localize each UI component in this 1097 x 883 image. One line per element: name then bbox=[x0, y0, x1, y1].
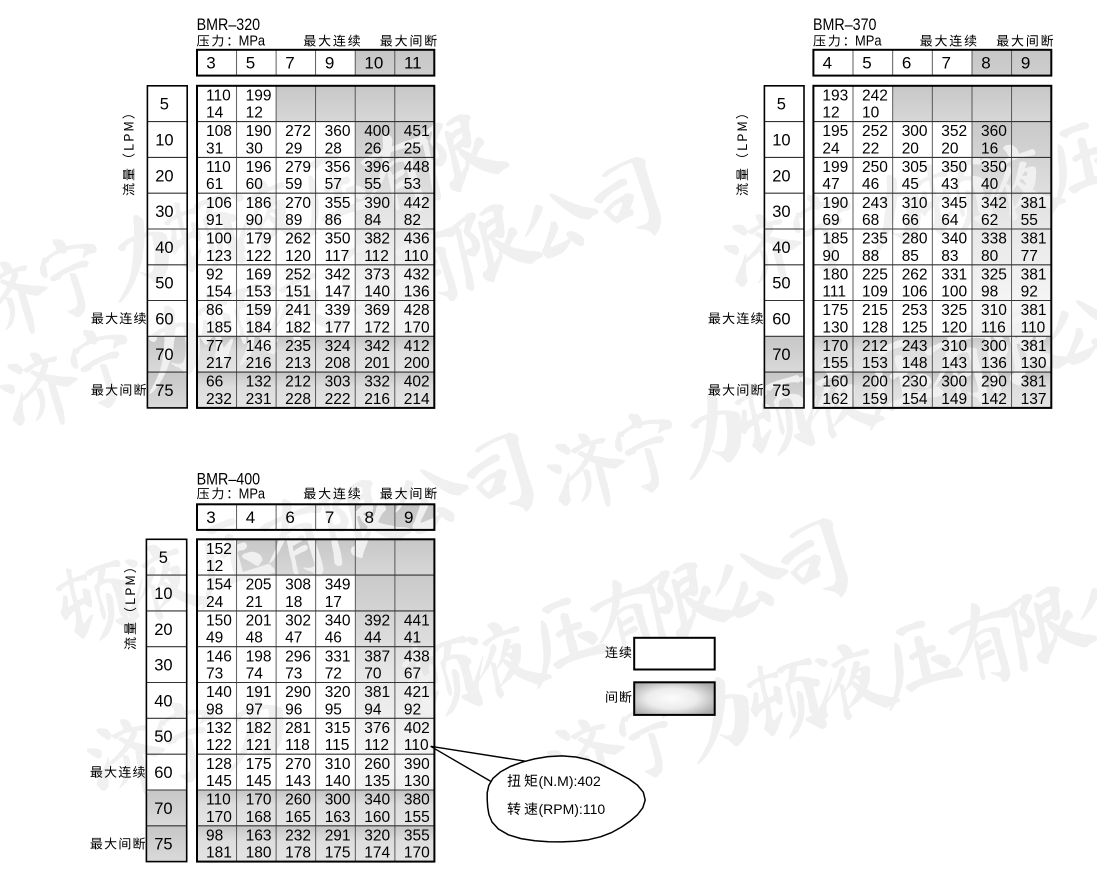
svg-text:310: 310 bbox=[325, 756, 351, 773]
svg-text:170: 170 bbox=[404, 845, 430, 862]
svg-text:130: 130 bbox=[404, 773, 430, 790]
svg-text:320: 320 bbox=[325, 684, 351, 701]
svg-text:360: 360 bbox=[325, 123, 351, 140]
svg-text:110: 110 bbox=[206, 87, 231, 104]
svg-text:154: 154 bbox=[902, 391, 928, 408]
svg-text:74: 74 bbox=[246, 666, 264, 683]
svg-text:121: 121 bbox=[246, 737, 272, 754]
svg-text:339: 339 bbox=[325, 302, 351, 319]
svg-text:77: 77 bbox=[1021, 248, 1038, 265]
svg-text:136: 136 bbox=[404, 284, 430, 301]
svg-text:146: 146 bbox=[246, 338, 272, 355]
svg-text:146: 146 bbox=[206, 648, 232, 665]
svg-text:170: 170 bbox=[822, 338, 848, 355]
svg-text:48: 48 bbox=[246, 630, 263, 647]
svg-text:10: 10 bbox=[772, 132, 790, 150]
svg-text:179: 179 bbox=[246, 231, 272, 248]
svg-text:75: 75 bbox=[155, 382, 173, 400]
svg-text:310: 310 bbox=[941, 338, 967, 355]
svg-text:291: 291 bbox=[325, 827, 351, 844]
svg-text:230: 230 bbox=[902, 374, 928, 391]
svg-text:111: 111 bbox=[822, 284, 846, 301]
svg-text:122: 122 bbox=[246, 248, 272, 265]
svg-text:381: 381 bbox=[364, 684, 390, 701]
svg-text:252: 252 bbox=[862, 123, 888, 140]
svg-text:281: 281 bbox=[285, 720, 311, 737]
svg-text:70: 70 bbox=[364, 666, 382, 683]
svg-text:120: 120 bbox=[285, 248, 311, 265]
svg-text:3: 3 bbox=[206, 54, 215, 73]
svg-text:100: 100 bbox=[206, 231, 232, 248]
svg-text:382: 382 bbox=[364, 231, 390, 248]
svg-text:213: 213 bbox=[285, 355, 311, 372]
svg-text:180: 180 bbox=[246, 845, 272, 862]
svg-text:310: 310 bbox=[981, 302, 1007, 319]
svg-text:73: 73 bbox=[206, 666, 223, 683]
svg-text:17: 17 bbox=[325, 594, 342, 611]
svg-text:160: 160 bbox=[822, 374, 848, 391]
svg-text:140: 140 bbox=[364, 284, 390, 301]
svg-text:308: 308 bbox=[285, 577, 311, 594]
svg-text:132: 132 bbox=[206, 720, 232, 737]
svg-text:108: 108 bbox=[206, 123, 232, 140]
svg-text:303: 303 bbox=[325, 374, 351, 391]
svg-text:10: 10 bbox=[862, 105, 880, 122]
svg-text:342: 342 bbox=[325, 266, 351, 283]
svg-text:345: 345 bbox=[941, 195, 967, 212]
svg-text:242: 242 bbox=[862, 87, 888, 104]
svg-text:10: 10 bbox=[155, 132, 173, 150]
svg-text:20: 20 bbox=[155, 167, 173, 185]
svg-text:91: 91 bbox=[206, 212, 223, 229]
svg-text:324: 324 bbox=[325, 338, 351, 355]
svg-text:90: 90 bbox=[246, 212, 264, 229]
svg-text:98: 98 bbox=[981, 284, 998, 301]
svg-text:253: 253 bbox=[902, 302, 928, 319]
svg-text:110: 110 bbox=[206, 159, 231, 176]
svg-text:262: 262 bbox=[285, 231, 311, 248]
svg-text:117: 117 bbox=[325, 248, 350, 265]
svg-text:70: 70 bbox=[154, 800, 172, 818]
svg-text:172: 172 bbox=[364, 319, 390, 336]
svg-text:369: 369 bbox=[364, 302, 390, 319]
svg-text:196: 196 bbox=[246, 159, 272, 176]
svg-text:280: 280 bbox=[902, 231, 928, 248]
svg-text:143: 143 bbox=[285, 773, 311, 790]
svg-text:92: 92 bbox=[1021, 284, 1038, 301]
svg-text:47: 47 bbox=[822, 176, 839, 193]
svg-text:BMR–370: BMR–370 bbox=[813, 15, 877, 34]
svg-text:112: 112 bbox=[364, 737, 389, 754]
svg-text:BMR–320: BMR–320 bbox=[197, 15, 261, 34]
svg-text:142: 142 bbox=[981, 391, 1007, 408]
svg-text:20: 20 bbox=[941, 140, 959, 157]
svg-text:110: 110 bbox=[404, 737, 429, 754]
svg-text:115: 115 bbox=[325, 737, 350, 754]
svg-text:201: 201 bbox=[246, 613, 272, 630]
svg-text:5: 5 bbox=[160, 96, 169, 114]
svg-text:145: 145 bbox=[206, 773, 232, 790]
svg-text:250: 250 bbox=[862, 159, 888, 176]
svg-text:46: 46 bbox=[862, 176, 879, 193]
svg-text:40: 40 bbox=[154, 692, 172, 710]
svg-text:106: 106 bbox=[206, 195, 232, 212]
svg-text:106: 106 bbox=[902, 284, 928, 301]
svg-text:47: 47 bbox=[285, 630, 302, 647]
svg-text:212: 212 bbox=[862, 338, 888, 355]
svg-text:355: 355 bbox=[325, 195, 351, 212]
svg-text:136: 136 bbox=[981, 355, 1007, 372]
svg-text:193: 193 bbox=[822, 87, 848, 104]
svg-text:216: 216 bbox=[364, 391, 390, 408]
svg-text:217: 217 bbox=[206, 355, 232, 372]
svg-text:260: 260 bbox=[285, 792, 311, 809]
svg-text:110: 110 bbox=[404, 248, 429, 265]
svg-text:381: 381 bbox=[1021, 231, 1047, 248]
svg-text:125: 125 bbox=[902, 319, 928, 336]
svg-text:331: 331 bbox=[941, 266, 967, 283]
svg-text:40: 40 bbox=[772, 239, 790, 257]
svg-text:10: 10 bbox=[364, 54, 383, 73]
svg-text:90: 90 bbox=[822, 248, 840, 265]
svg-text:168: 168 bbox=[246, 809, 272, 826]
svg-text:5: 5 bbox=[777, 96, 786, 114]
svg-text:20: 20 bbox=[772, 167, 790, 185]
svg-text:16: 16 bbox=[981, 140, 998, 157]
svg-text:148: 148 bbox=[902, 355, 928, 372]
svg-text:(RPM):110: (RPM):110 bbox=[539, 801, 606, 817]
svg-text:387: 387 bbox=[364, 648, 390, 665]
svg-text:MPa: MPa bbox=[239, 485, 266, 502]
svg-text:178: 178 bbox=[285, 845, 311, 862]
svg-text:8: 8 bbox=[981, 54, 990, 73]
svg-text:177: 177 bbox=[325, 319, 351, 336]
svg-text:155: 155 bbox=[822, 355, 848, 372]
svg-text:96: 96 bbox=[285, 701, 302, 718]
svg-text:170: 170 bbox=[206, 809, 232, 826]
svg-text:109: 109 bbox=[862, 284, 888, 301]
svg-text:441: 441 bbox=[404, 613, 430, 630]
svg-text:30: 30 bbox=[155, 203, 173, 221]
svg-text:75: 75 bbox=[154, 836, 172, 854]
svg-text:350: 350 bbox=[941, 159, 967, 176]
svg-text:24: 24 bbox=[206, 594, 224, 611]
svg-text:421: 421 bbox=[404, 684, 430, 701]
svg-text:162: 162 bbox=[822, 391, 848, 408]
svg-text:300: 300 bbox=[941, 374, 967, 391]
svg-text:110: 110 bbox=[206, 792, 231, 809]
svg-text:200: 200 bbox=[404, 355, 430, 372]
svg-text:149: 149 bbox=[941, 391, 967, 408]
svg-text:186: 186 bbox=[246, 195, 272, 212]
svg-text:182: 182 bbox=[285, 319, 311, 336]
svg-text:49: 49 bbox=[206, 630, 223, 647]
svg-text:232: 232 bbox=[206, 391, 232, 408]
svg-text:82: 82 bbox=[404, 212, 421, 229]
svg-text:243: 243 bbox=[902, 338, 928, 355]
svg-text:43: 43 bbox=[941, 176, 958, 193]
svg-text:92: 92 bbox=[206, 266, 223, 283]
svg-text:140: 140 bbox=[206, 684, 232, 701]
svg-text:55: 55 bbox=[364, 176, 381, 193]
svg-text:50: 50 bbox=[154, 728, 172, 746]
svg-text:338: 338 bbox=[981, 231, 1007, 248]
svg-text:68: 68 bbox=[862, 212, 879, 229]
svg-text:10: 10 bbox=[154, 585, 172, 603]
svg-text:290: 290 bbox=[285, 684, 311, 701]
svg-text:122: 122 bbox=[206, 737, 232, 754]
svg-text:80: 80 bbox=[981, 248, 999, 265]
svg-text:205: 205 bbox=[246, 577, 272, 594]
svg-text:44: 44 bbox=[364, 630, 382, 647]
svg-text:442: 442 bbox=[404, 195, 430, 212]
svg-text:199: 199 bbox=[822, 159, 848, 176]
svg-text:170: 170 bbox=[246, 792, 272, 809]
svg-text:61: 61 bbox=[206, 176, 223, 193]
svg-text:7: 7 bbox=[285, 54, 294, 73]
svg-text:216: 216 bbox=[246, 355, 272, 372]
svg-text:128: 128 bbox=[862, 319, 888, 336]
svg-text:381: 381 bbox=[1021, 266, 1047, 283]
svg-text:154: 154 bbox=[206, 577, 232, 594]
svg-text:325: 325 bbox=[941, 302, 967, 319]
svg-text:7: 7 bbox=[325, 508, 334, 527]
svg-text:174: 174 bbox=[364, 845, 390, 862]
svg-text:252: 252 bbox=[285, 266, 311, 283]
svg-text:151: 151 bbox=[285, 284, 311, 301]
svg-text:73: 73 bbox=[285, 666, 302, 683]
svg-text:340: 340 bbox=[364, 792, 390, 809]
svg-text:77: 77 bbox=[206, 338, 223, 355]
svg-text:24: 24 bbox=[822, 140, 840, 157]
svg-text:340: 340 bbox=[325, 613, 351, 630]
svg-text:143: 143 bbox=[941, 355, 967, 372]
svg-text:4: 4 bbox=[246, 508, 255, 527]
svg-text:190: 190 bbox=[822, 195, 848, 212]
svg-text:165: 165 bbox=[285, 809, 311, 826]
svg-text:350: 350 bbox=[325, 231, 351, 248]
svg-text:290: 290 bbox=[981, 374, 1007, 391]
svg-text:198: 198 bbox=[246, 648, 272, 665]
svg-text:59: 59 bbox=[285, 176, 302, 193]
svg-text:12: 12 bbox=[246, 105, 263, 122]
svg-text:241: 241 bbox=[285, 302, 311, 319]
svg-text:159: 159 bbox=[862, 391, 888, 408]
svg-text:9: 9 bbox=[404, 508, 413, 527]
svg-text:270: 270 bbox=[285, 756, 311, 773]
svg-text:140: 140 bbox=[325, 773, 351, 790]
svg-text:428: 428 bbox=[404, 302, 430, 319]
svg-text:112: 112 bbox=[364, 248, 389, 265]
svg-text:147: 147 bbox=[325, 284, 351, 301]
svg-text:5: 5 bbox=[862, 54, 871, 73]
svg-text:231: 231 bbox=[246, 391, 272, 408]
svg-text:40: 40 bbox=[981, 176, 999, 193]
svg-text:349: 349 bbox=[325, 577, 351, 594]
svg-text:30: 30 bbox=[772, 203, 790, 221]
svg-text:98: 98 bbox=[206, 701, 223, 718]
svg-text:20: 20 bbox=[154, 621, 172, 639]
svg-text:135: 135 bbox=[364, 773, 390, 790]
svg-text:170: 170 bbox=[404, 319, 430, 336]
svg-text:342: 342 bbox=[981, 195, 1007, 212]
svg-text:72: 72 bbox=[325, 666, 342, 683]
svg-text:381: 381 bbox=[1021, 302, 1047, 319]
svg-text:355: 355 bbox=[404, 827, 430, 844]
svg-text:402: 402 bbox=[404, 720, 430, 737]
svg-text:300: 300 bbox=[902, 123, 928, 140]
svg-text:260: 260 bbox=[364, 756, 390, 773]
svg-text:26: 26 bbox=[364, 140, 381, 157]
svg-text:392: 392 bbox=[364, 613, 390, 630]
svg-text:195: 195 bbox=[822, 123, 848, 140]
svg-text:40: 40 bbox=[155, 239, 173, 257]
svg-text:MPa: MPa bbox=[239, 33, 266, 50]
svg-text:235: 235 bbox=[285, 338, 311, 355]
svg-text:190: 190 bbox=[246, 123, 272, 140]
svg-text:315: 315 bbox=[325, 720, 351, 737]
svg-text:438: 438 bbox=[404, 648, 430, 665]
svg-text:53: 53 bbox=[404, 176, 421, 193]
svg-text:342: 342 bbox=[364, 338, 390, 355]
svg-text:9: 9 bbox=[325, 54, 334, 73]
svg-text:20: 20 bbox=[902, 140, 920, 157]
svg-text:22: 22 bbox=[862, 140, 879, 157]
svg-text:11: 11 bbox=[404, 54, 422, 73]
svg-text:272: 272 bbox=[285, 123, 311, 140]
svg-text:97: 97 bbox=[246, 701, 263, 718]
svg-text:201: 201 bbox=[364, 355, 390, 372]
svg-text:85: 85 bbox=[902, 248, 919, 265]
svg-text:296: 296 bbox=[285, 648, 311, 665]
svg-text:154: 154 bbox=[206, 284, 232, 301]
svg-text:5: 5 bbox=[246, 54, 255, 73]
svg-text:86: 86 bbox=[206, 302, 223, 319]
svg-text:300: 300 bbox=[325, 792, 351, 809]
svg-text:243: 243 bbox=[862, 195, 888, 212]
svg-text:130: 130 bbox=[1021, 355, 1047, 372]
svg-text:320: 320 bbox=[364, 827, 390, 844]
svg-text:448: 448 bbox=[404, 159, 430, 176]
svg-text:95: 95 bbox=[325, 701, 342, 718]
svg-text:402: 402 bbox=[404, 374, 430, 391]
svg-text:84: 84 bbox=[364, 212, 382, 229]
svg-text:199: 199 bbox=[246, 87, 272, 104]
svg-text:6: 6 bbox=[902, 54, 911, 73]
svg-text:332: 332 bbox=[364, 374, 390, 391]
svg-text:45: 45 bbox=[902, 176, 919, 193]
svg-text:432: 432 bbox=[404, 266, 430, 283]
svg-text:18: 18 bbox=[285, 594, 302, 611]
svg-text:9: 9 bbox=[1021, 54, 1030, 73]
svg-text:400: 400 bbox=[364, 123, 390, 140]
svg-text:152: 152 bbox=[206, 541, 232, 558]
svg-text:232: 232 bbox=[285, 827, 311, 844]
svg-text:153: 153 bbox=[862, 355, 888, 372]
svg-text:191: 191 bbox=[246, 684, 272, 701]
svg-text:412: 412 bbox=[404, 338, 430, 355]
svg-text:98: 98 bbox=[206, 827, 223, 844]
svg-text:169: 169 bbox=[246, 266, 272, 283]
svg-text:451: 451 bbox=[404, 123, 430, 140]
svg-text:100: 100 bbox=[941, 284, 967, 301]
svg-text:57: 57 bbox=[325, 176, 342, 193]
svg-text:(N.M):402: (N.M):402 bbox=[539, 773, 601, 789]
svg-text:381: 381 bbox=[1021, 195, 1047, 212]
svg-text:MPa: MPa bbox=[855, 33, 882, 50]
svg-text:390: 390 bbox=[364, 195, 390, 212]
svg-text:214: 214 bbox=[404, 391, 430, 408]
svg-text:75: 75 bbox=[772, 382, 790, 400]
svg-text:381: 381 bbox=[1021, 338, 1047, 355]
svg-text:175: 175 bbox=[822, 302, 848, 319]
svg-text:235: 235 bbox=[862, 231, 888, 248]
svg-text:352: 352 bbox=[941, 123, 967, 140]
svg-text:4: 4 bbox=[823, 54, 832, 73]
svg-text:145: 145 bbox=[246, 773, 272, 790]
svg-text:123: 123 bbox=[206, 248, 232, 265]
svg-text:60: 60 bbox=[154, 764, 172, 782]
svg-text:28: 28 bbox=[325, 140, 342, 157]
svg-text:262: 262 bbox=[902, 266, 928, 283]
svg-text:175: 175 bbox=[325, 845, 351, 862]
svg-text:325: 325 bbox=[981, 266, 1007, 283]
svg-text:30: 30 bbox=[246, 140, 264, 157]
svg-text:159: 159 bbox=[246, 302, 272, 319]
svg-text:160: 160 bbox=[364, 809, 390, 826]
svg-text:116: 116 bbox=[981, 319, 1006, 336]
svg-text:181: 181 bbox=[206, 845, 232, 862]
svg-text:340: 340 bbox=[941, 231, 967, 248]
svg-text:163: 163 bbox=[325, 809, 351, 826]
svg-text:270: 270 bbox=[285, 195, 311, 212]
svg-text:396: 396 bbox=[364, 159, 390, 176]
svg-text:215: 215 bbox=[862, 302, 888, 319]
svg-text:184: 184 bbox=[246, 319, 272, 336]
svg-text:46: 46 bbox=[325, 630, 342, 647]
svg-text:66: 66 bbox=[206, 374, 223, 391]
svg-text:83: 83 bbox=[941, 248, 958, 265]
svg-text:180: 180 bbox=[822, 266, 848, 283]
svg-text:390: 390 bbox=[404, 756, 430, 773]
svg-text:5: 5 bbox=[159, 549, 168, 567]
svg-text:86: 86 bbox=[325, 212, 342, 229]
svg-text:163: 163 bbox=[246, 827, 272, 844]
svg-text:29: 29 bbox=[285, 140, 302, 157]
svg-text:130: 130 bbox=[822, 319, 848, 336]
svg-text:62: 62 bbox=[981, 212, 998, 229]
svg-text:88: 88 bbox=[862, 248, 879, 265]
svg-text:41: 41 bbox=[404, 630, 421, 647]
svg-text:300: 300 bbox=[981, 338, 1007, 355]
svg-text:128: 128 bbox=[206, 756, 232, 773]
svg-text:356: 356 bbox=[325, 159, 351, 176]
svg-text:21: 21 bbox=[246, 594, 263, 611]
svg-text:12: 12 bbox=[822, 105, 839, 122]
svg-text:92: 92 bbox=[404, 701, 421, 718]
svg-text:222: 222 bbox=[325, 391, 351, 408]
svg-text:70: 70 bbox=[772, 346, 790, 364]
svg-text:60: 60 bbox=[155, 310, 173, 328]
svg-text:55: 55 bbox=[1021, 212, 1038, 229]
svg-text:12: 12 bbox=[206, 558, 223, 575]
svg-text:60: 60 bbox=[246, 176, 264, 193]
svg-text:70: 70 bbox=[155, 346, 173, 364]
svg-text:376: 376 bbox=[364, 720, 390, 737]
svg-text:331: 331 bbox=[325, 648, 351, 665]
svg-text:350: 350 bbox=[981, 159, 1007, 176]
svg-text:50: 50 bbox=[772, 275, 790, 293]
